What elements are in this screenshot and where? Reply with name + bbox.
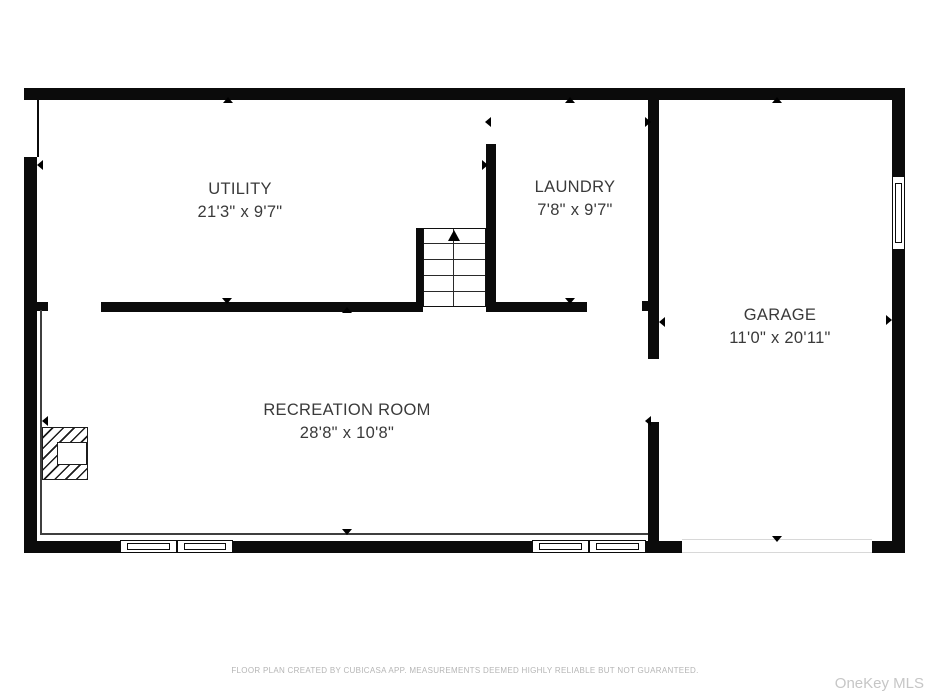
room-name: RECREATION ROOM	[263, 399, 430, 422]
wall-stairs-left	[416, 228, 423, 312]
left-direction-marker-icon	[485, 117, 491, 127]
room-dimensions: 7'8" x 9'7"	[535, 199, 616, 222]
window-pane	[184, 543, 226, 550]
down-direction-marker-icon	[772, 536, 782, 542]
window	[177, 540, 233, 553]
stair-tread	[424, 259, 485, 260]
up-direction-marker-icon	[342, 307, 352, 313]
down-direction-marker-icon	[222, 298, 232, 304]
wall-exterior-right	[892, 88, 905, 553]
down-direction-marker-icon	[565, 298, 575, 304]
left-wall-opening	[24, 100, 39, 157]
left-direction-marker-icon	[42, 416, 48, 426]
right-direction-marker-icon	[645, 117, 651, 127]
window	[532, 540, 589, 553]
stair-tread	[424, 275, 485, 276]
right-direction-marker-icon	[886, 315, 892, 325]
room-label-utility: UTILITY 21'3" x 9'7"	[198, 178, 283, 224]
chimney-flue	[57, 442, 87, 465]
left-direction-marker-icon	[645, 416, 651, 426]
window	[120, 540, 177, 553]
up-direction-marker-icon	[565, 97, 575, 103]
staircase	[423, 228, 486, 307]
room-label-recreation-room: RECREATION ROOM 28'8" x 10'8"	[263, 399, 430, 445]
left-direction-marker-icon	[659, 317, 665, 327]
room-name: UTILITY	[198, 178, 283, 201]
floor-plan-canvas: UTILITY 21'3" x 9'7" LAUNDRY 7'8" x 9'7"…	[0, 0, 930, 697]
up-direction-marker-icon	[223, 97, 233, 103]
room-label-laundry: LAUNDRY 7'8" x 9'7"	[535, 176, 616, 222]
stair-tread	[424, 243, 485, 244]
room-dimensions: 11'0" x 20'11"	[729, 327, 830, 350]
window-pane	[895, 183, 902, 243]
onekey-mls-watermark: OneKey MLS	[835, 675, 924, 692]
wall-exterior-left	[24, 88, 37, 553]
wall-stub-garage	[642, 301, 649, 311]
room-name: LAUNDRY	[535, 176, 616, 199]
stairs-up-arrow-icon	[448, 230, 460, 241]
garage-window	[892, 176, 905, 250]
up-direction-marker-icon	[772, 97, 782, 103]
window	[589, 540, 646, 553]
wall-stub-left	[37, 302, 48, 311]
down-direction-marker-icon	[342, 529, 352, 535]
window-pane	[596, 543, 639, 550]
room-dimensions: 21'3" x 9'7"	[198, 201, 283, 224]
left-direction-marker-icon	[37, 160, 43, 170]
stair-tread	[424, 291, 485, 292]
room-label-garage: GARAGE 11'0" x 20'11"	[729, 304, 830, 350]
wall-garage-left-lower	[648, 422, 659, 542]
window-pane	[539, 543, 582, 550]
right-direction-marker-icon	[482, 160, 488, 170]
room-dimensions: 28'8" x 10'8"	[263, 422, 430, 445]
room-name: GARAGE	[729, 304, 830, 327]
disclaimer-text: FLOOR PLAN CREATED BY CUBICASA APP. MEAS…	[0, 666, 930, 675]
window-pane	[127, 543, 170, 550]
wall-interior-horizontal-left	[101, 302, 423, 312]
wall-garage-left-upper	[648, 99, 659, 359]
